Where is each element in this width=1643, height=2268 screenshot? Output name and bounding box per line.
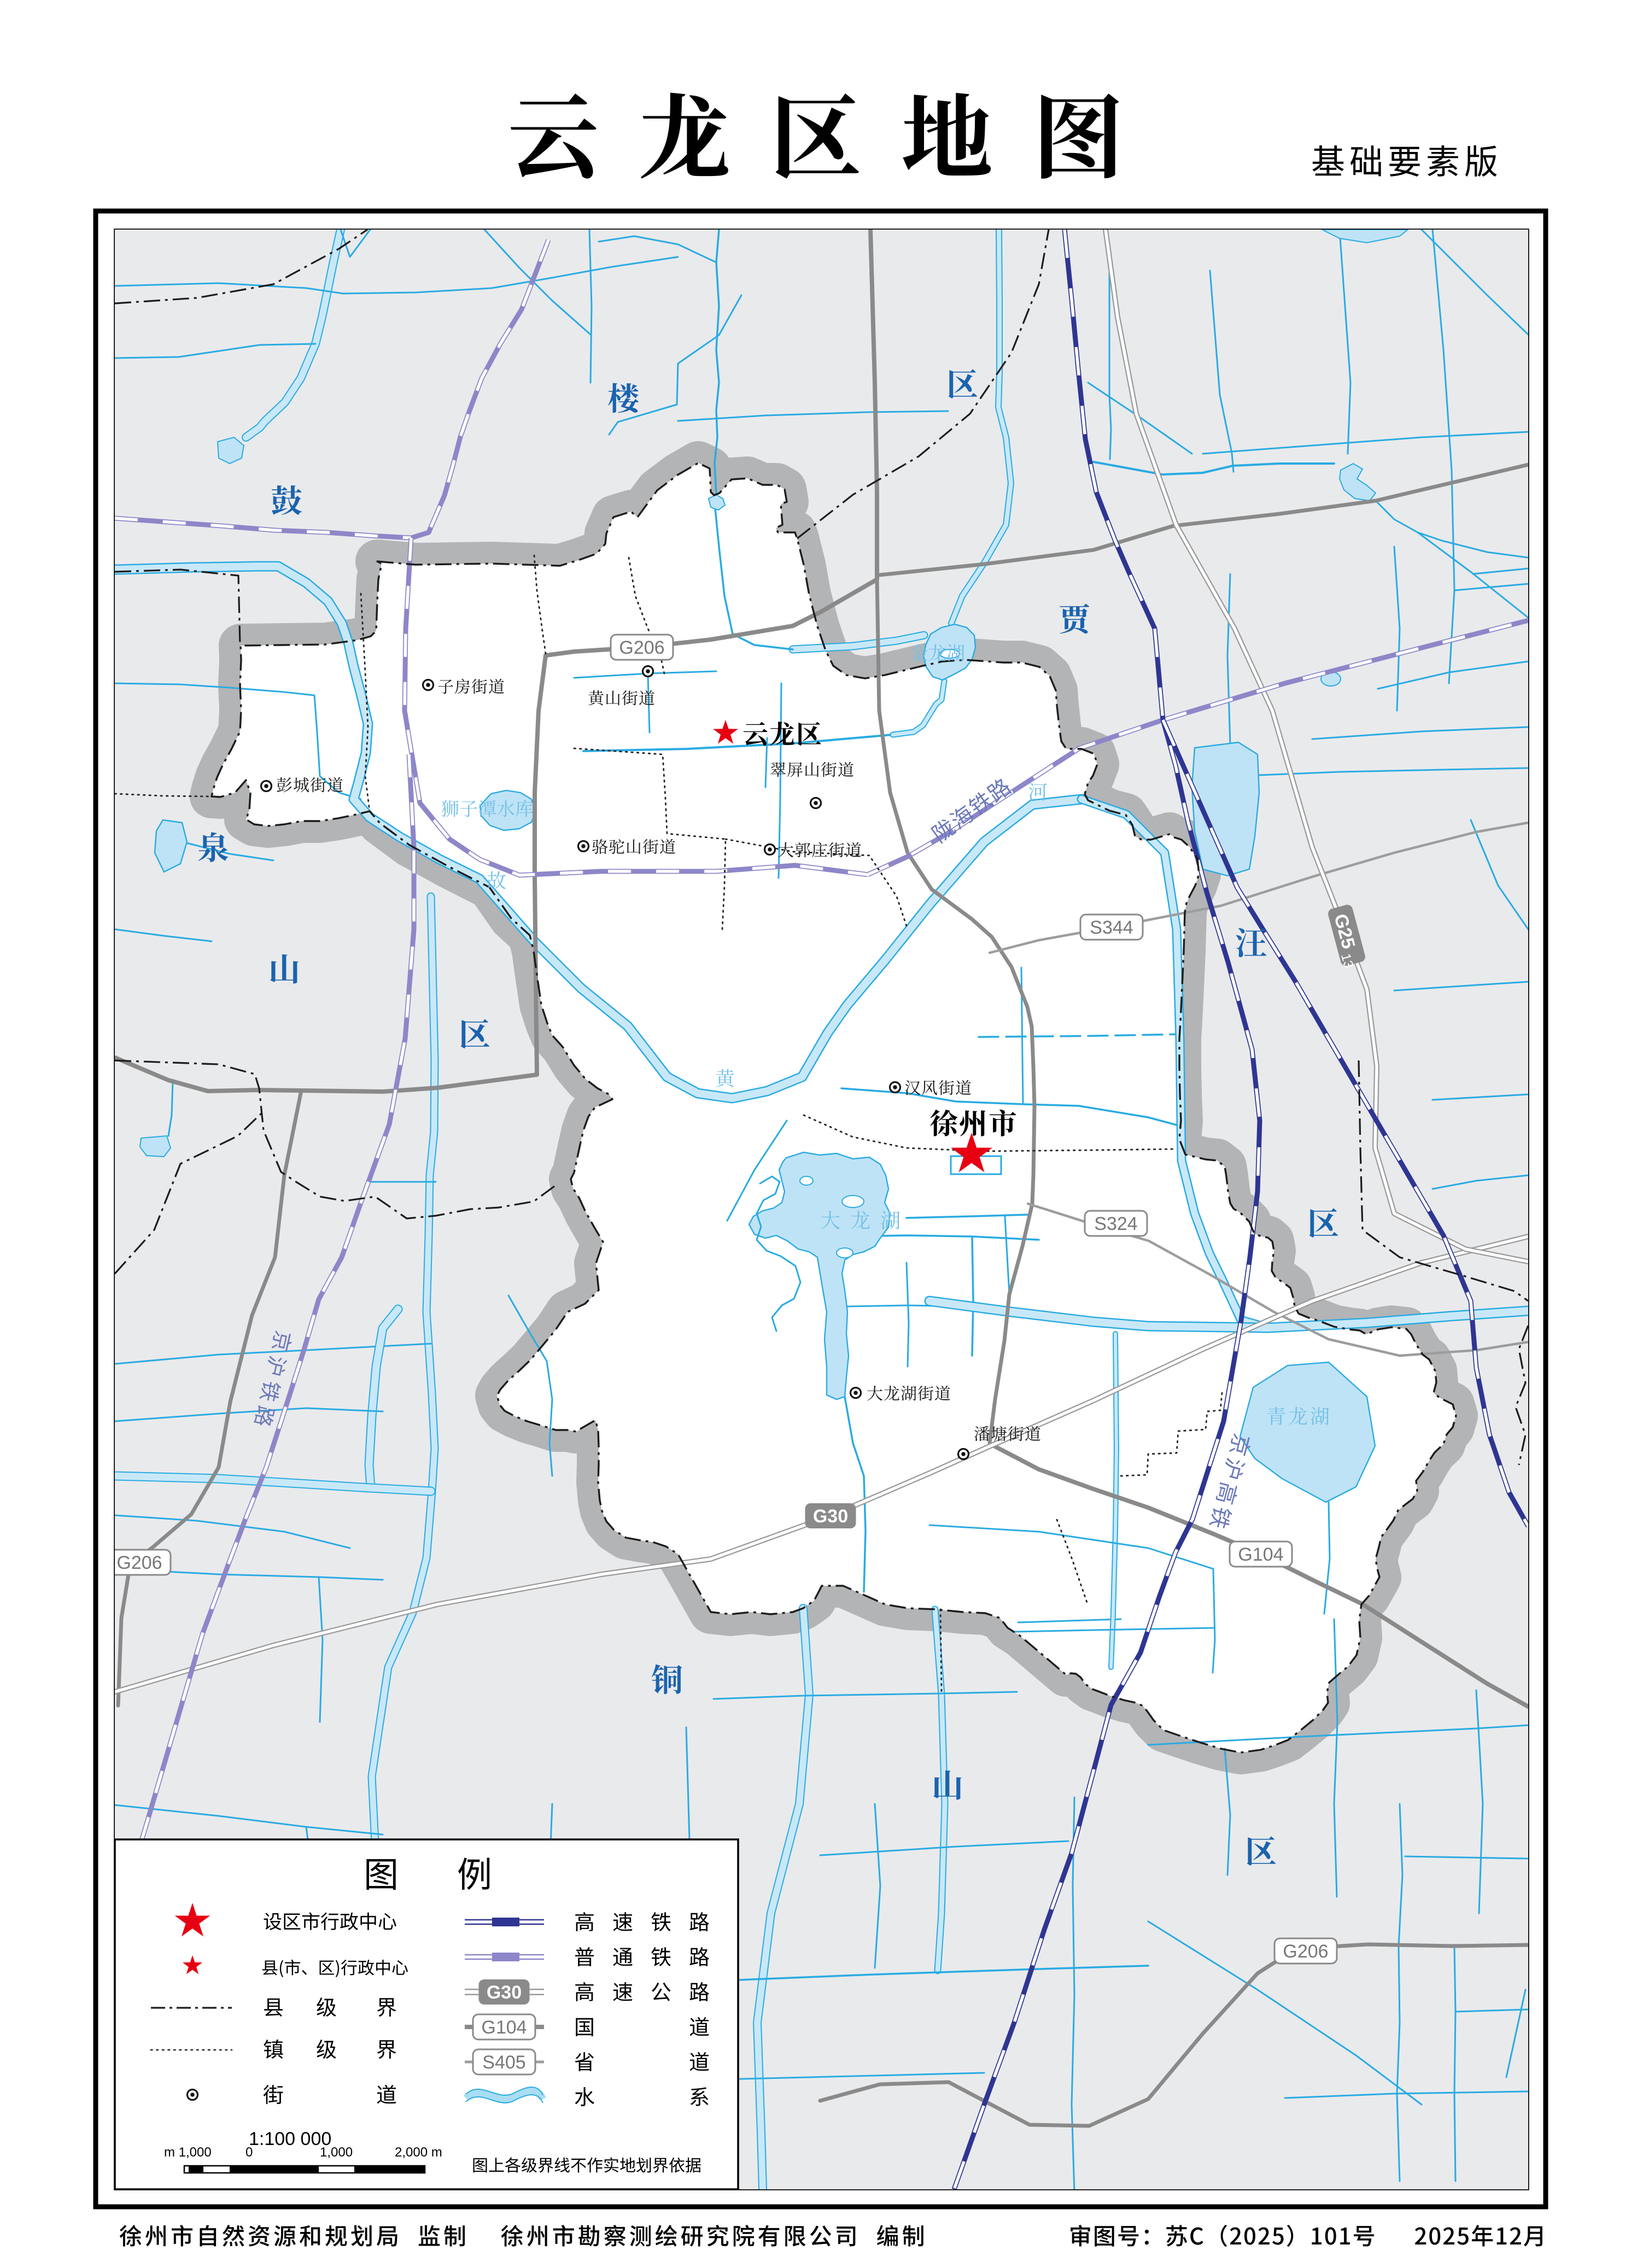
svg-text:2,000 m: 2,000 m (395, 2145, 442, 2160)
svg-text:S344: S344 (1090, 917, 1133, 938)
svg-text:G104: G104 (1238, 1544, 1283, 1565)
svg-text:G206: G206 (1283, 1941, 1328, 1962)
svg-text:1,000: 1,000 (320, 2145, 353, 2160)
svg-text:G104: G104 (481, 2017, 527, 2038)
svg-text:S405: S405 (482, 2052, 525, 2073)
svg-text:G206: G206 (116, 1552, 162, 1573)
svg-text:S324: S324 (1094, 1214, 1137, 1234)
svg-text:G30: G30 (487, 1982, 522, 2003)
svg-text:m 1,000: m 1,000 (164, 2145, 212, 2160)
svg-text:G30: G30 (813, 1506, 848, 1527)
svg-text:0: 0 (245, 2145, 253, 2160)
svg-text:1:100 000: 1:100 000 (249, 2129, 331, 2149)
svg-text:G206: G206 (619, 637, 664, 658)
